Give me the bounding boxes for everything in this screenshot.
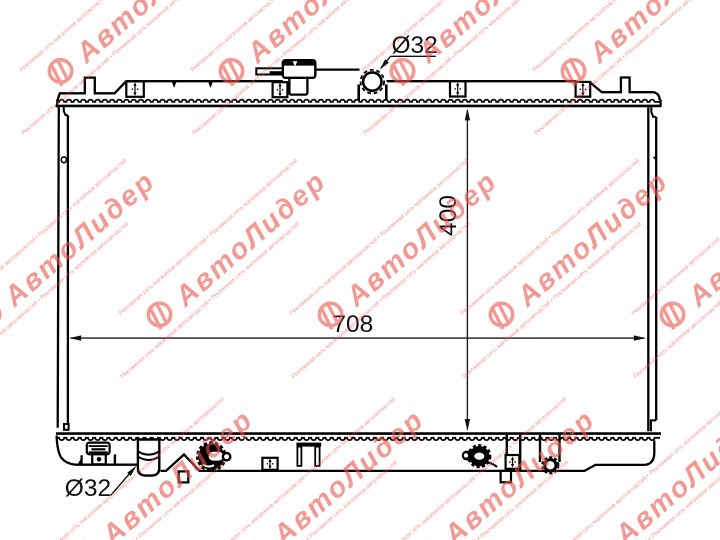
svg-text:Ø32: Ø32 [65, 475, 111, 502]
